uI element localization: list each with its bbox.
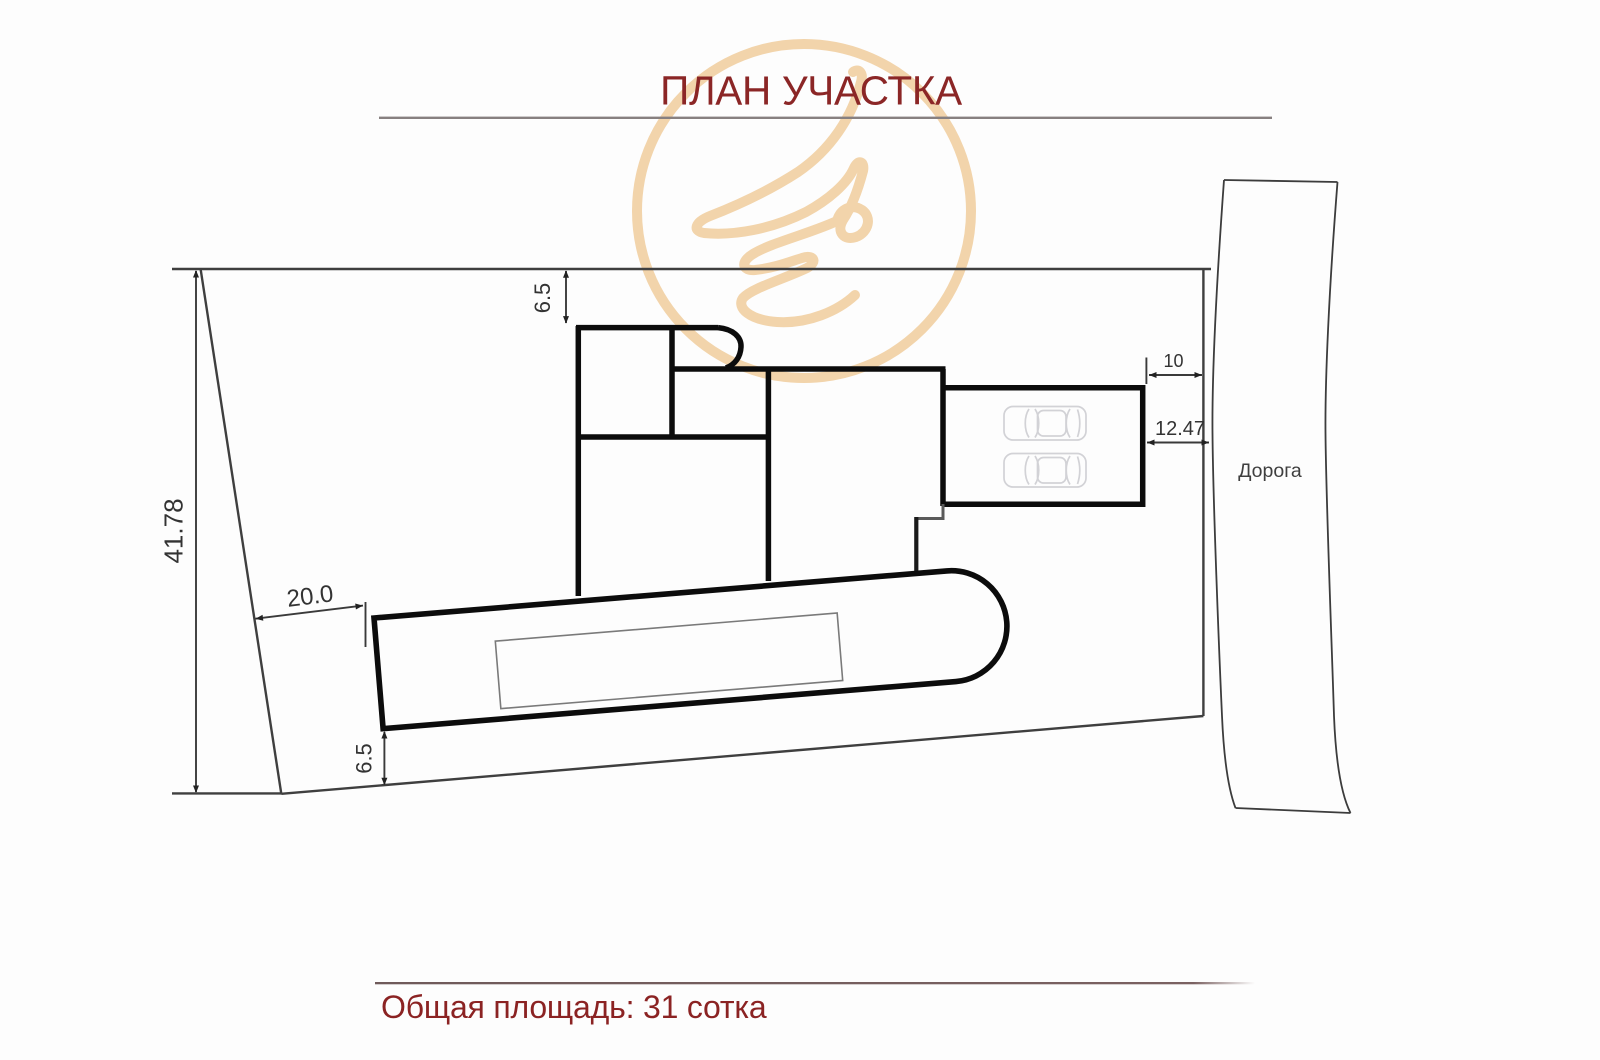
svg-text:Общая площадь: 31 сотка: Общая площадь: 31 сотка [381,989,767,1025]
svg-text:Дорога: Дорога [1238,460,1302,482]
svg-text:6.5: 6.5 [352,743,377,774]
svg-text:12.47: 12.47 [1155,418,1205,440]
svg-text:ПЛАН УЧАСТКА: ПЛАН УЧАСТКА [660,68,962,114]
svg-text:10: 10 [1163,351,1183,371]
svg-text:6.5: 6.5 [530,283,555,314]
svg-text:41.78: 41.78 [159,498,189,563]
svg-text:20.0: 20.0 [285,580,335,612]
